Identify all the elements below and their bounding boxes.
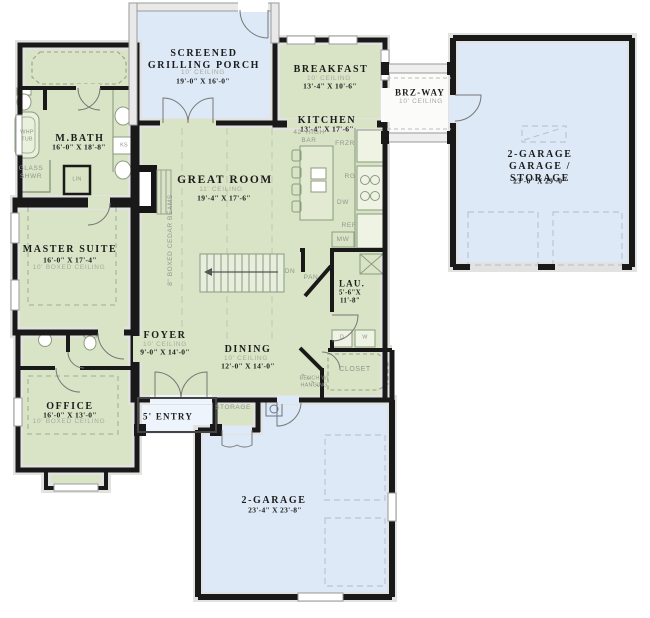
floor-fills	[15, 5, 632, 597]
staircase	[200, 254, 284, 292]
floor-plan-drawing	[0, 0, 650, 618]
floor-plan: SCREENED GRILLING PORCH 10' CEILING 19'-…	[0, 0, 650, 618]
